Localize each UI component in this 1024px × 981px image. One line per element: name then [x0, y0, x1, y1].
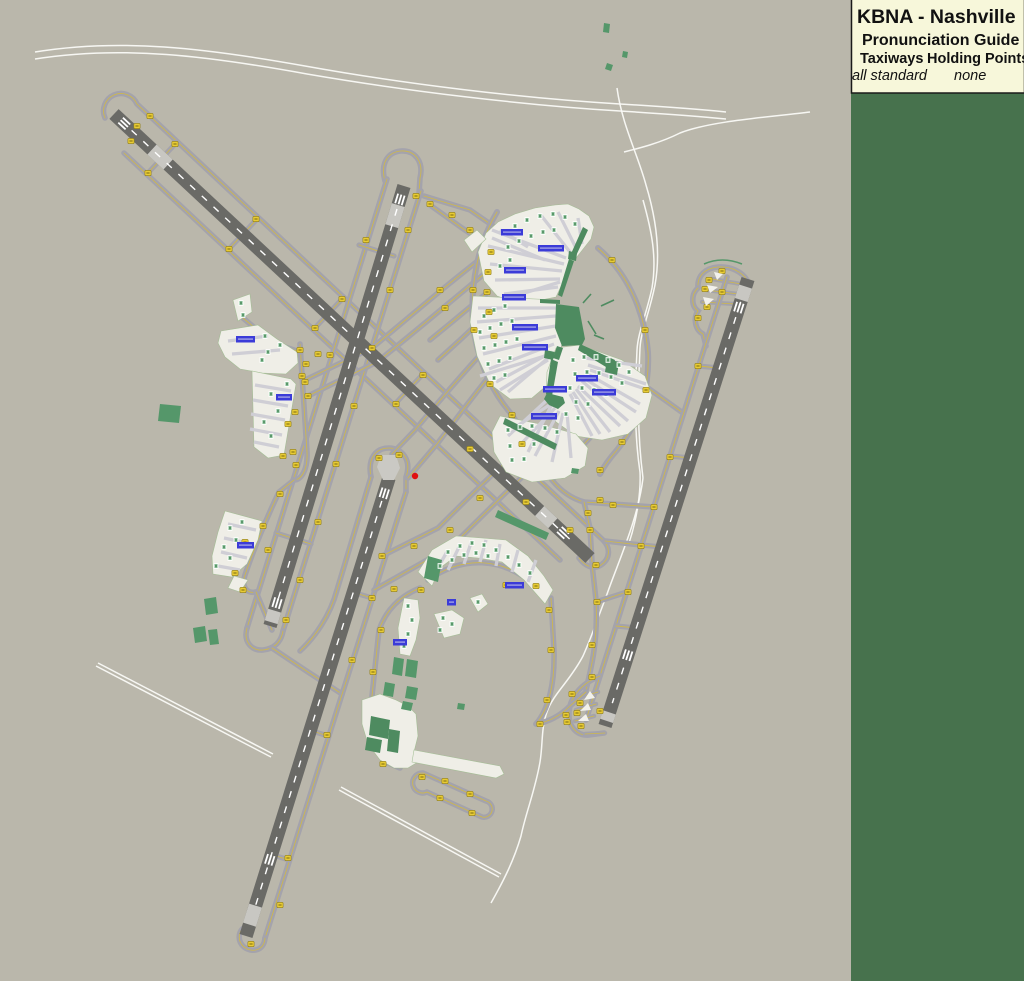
svg-text:Holding Points: Holding Points: [927, 51, 1024, 67]
svg-text:all standard: all standard: [852, 68, 928, 84]
svg-text:KBNA - Nashville: KBNA - Nashville: [857, 6, 1016, 28]
svg-text:none: none: [954, 68, 986, 84]
svg-text:Taxiways: Taxiways: [860, 51, 923, 67]
svg-text:Pronunciation Guide: Pronunciation Guide: [862, 32, 1019, 49]
